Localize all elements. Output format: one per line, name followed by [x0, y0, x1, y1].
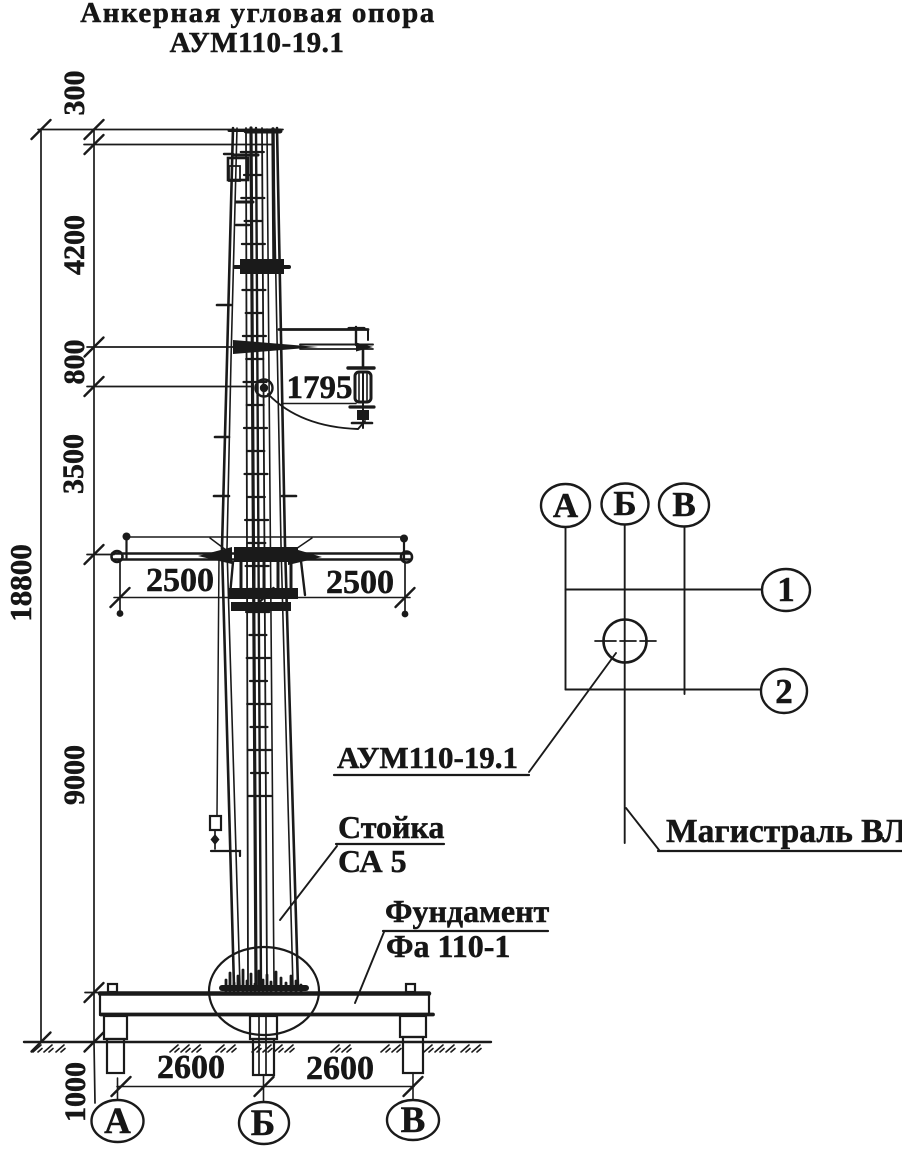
svg-text:Фа 110-1: Фа 110-1 — [386, 928, 510, 964]
svg-text:2500: 2500 — [326, 564, 394, 601]
svg-text:4200: 4200 — [58, 215, 91, 275]
svg-text:800: 800 — [58, 340, 91, 385]
svg-text:300: 300 — [58, 71, 91, 116]
svg-text:АУМ110-19.1: АУМ110-19.1 — [170, 27, 345, 59]
svg-text:В: В — [401, 1100, 426, 1141]
svg-text:2600: 2600 — [157, 1049, 225, 1086]
svg-text:1000: 1000 — [59, 1062, 92, 1122]
svg-text:Магистраль ВЛ: Магистраль ВЛ — [666, 813, 902, 850]
svg-text:Б: Б — [613, 484, 636, 523]
svg-text:1795: 1795 — [287, 370, 353, 406]
svg-text:2500: 2500 — [146, 562, 214, 599]
svg-text:В: В — [672, 485, 695, 524]
svg-text:АУМ110-19.1: АУМ110-19.1 — [337, 740, 518, 775]
svg-text:А: А — [104, 1101, 131, 1142]
svg-text:Б: Б — [251, 1103, 275, 1144]
svg-text:3500: 3500 — [57, 434, 90, 494]
svg-text:1: 1 — [777, 570, 795, 609]
svg-text:2600: 2600 — [306, 1050, 374, 1087]
svg-text:А: А — [553, 486, 579, 525]
svg-text:СА 5: СА 5 — [338, 843, 407, 879]
svg-text:Анкерная угловая опора: Анкерная угловая опора — [80, 0, 435, 29]
svg-text:18800: 18800 — [3, 544, 38, 622]
svg-text:2: 2 — [775, 672, 793, 711]
svg-text:Фундамент: Фундамент — [385, 893, 550, 929]
svg-text:Стойка: Стойка — [338, 809, 444, 845]
svg-text:9000: 9000 — [58, 745, 91, 805]
